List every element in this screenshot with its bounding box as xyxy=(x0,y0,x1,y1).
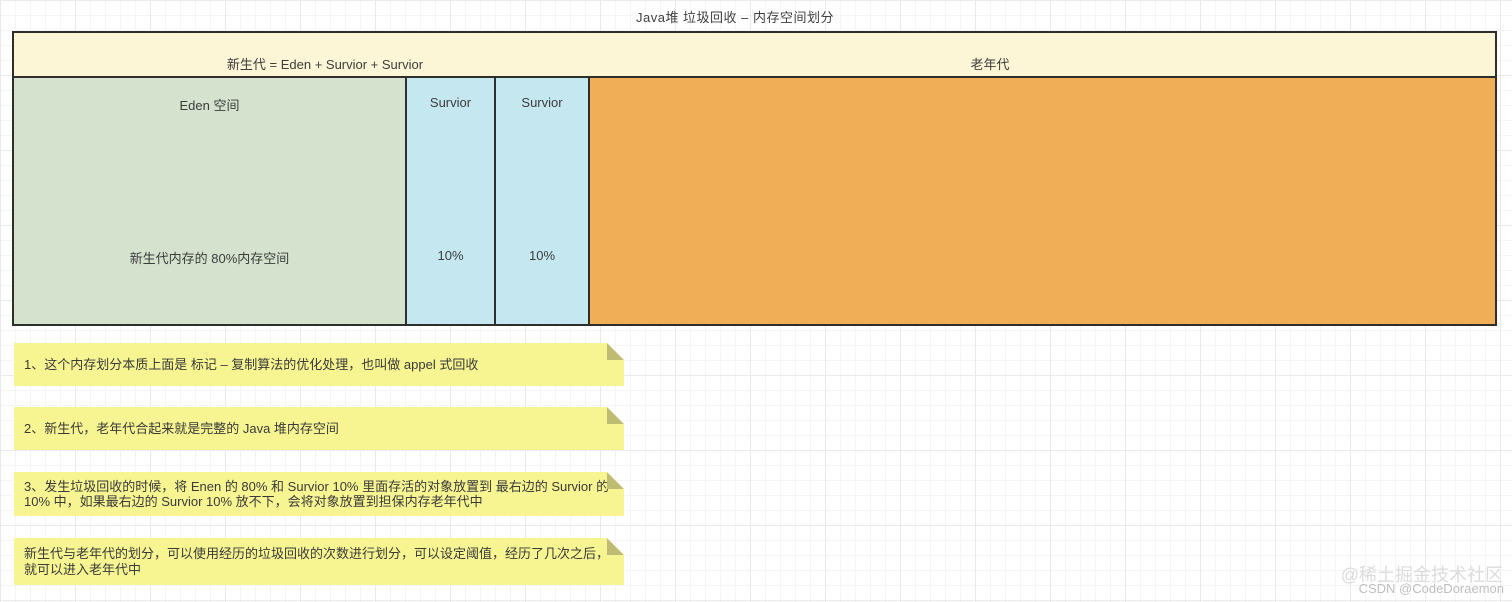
diagram-canvas: Java堆 垃圾回收 – 内存空间划分 新生代 = Eden + Survior… xyxy=(0,0,1512,602)
survivor-region-1: Survior 10% xyxy=(405,76,496,326)
eden-region: Eden 空间 新生代内存的 80%内存空间 xyxy=(12,76,407,326)
survivor-1-size-label: 10% xyxy=(407,248,494,263)
csdn-watermark: CSDN @CodeDoraemon xyxy=(1359,581,1504,596)
note-fold-corner-icon xyxy=(607,407,624,424)
note-fold-corner-icon xyxy=(607,538,624,555)
survivor-2-size-label: 10% xyxy=(496,248,588,263)
old-gen-region xyxy=(588,76,1497,326)
note-4: 新生代与老年代的划分，可以使用经历的垃圾回收的次数进行划分，可以设定阈值，经历了… xyxy=(14,538,624,585)
survivor-2-label: Survior xyxy=(496,95,588,110)
java-heap-diagram: 新生代 = Eden + Survior + Survior 老年代 Eden … xyxy=(12,31,1497,326)
eden-size-label: 新生代内存的 80%内存空间 xyxy=(14,248,405,267)
generation-header-bar: 新生代 = Eden + Survior + Survior 老年代 xyxy=(12,31,1497,78)
note-3: 3、发生垃圾回收的时候，将 Enen 的 80% 和 Survior 10% 里… xyxy=(14,472,624,516)
note-1-text: 1、这个内存划分本质上面是 标记 – 复制算法的优化处理，也叫做 appel 式… xyxy=(14,357,488,373)
old-gen-header-label: 老年代 xyxy=(840,54,1140,73)
note-1: 1、这个内存划分本质上面是 标记 – 复制算法的优化处理，也叫做 appel 式… xyxy=(14,343,624,386)
survivor-1-label: Survior xyxy=(407,95,494,110)
note-fold-corner-icon xyxy=(607,472,624,489)
eden-label: Eden 空间 xyxy=(14,95,405,114)
young-gen-header-label: 新生代 = Eden + Survior + Survior xyxy=(175,54,475,73)
survivor-region-2: Survior 10% xyxy=(494,76,590,326)
note-fold-corner-icon xyxy=(607,343,624,360)
memory-regions-row: Eden 空间 新生代内存的 80%内存空间 Survior 10% Survi… xyxy=(12,76,1497,326)
note-3-text: 3、发生垃圾回收的时候，将 Enen 的 80% 和 Survior 10% 里… xyxy=(14,479,624,510)
note-2: 2、新生代，老年代合起来就是完整的 Java 堆内存空间 xyxy=(14,407,624,450)
note-4-text: 新生代与老年代的划分，可以使用经历的垃圾回收的次数进行划分，可以设定阈值，经历了… xyxy=(14,546,624,577)
page-title: Java堆 垃圾回收 – 内存空间划分 xyxy=(585,7,885,26)
note-2-text: 2、新生代，老年代合起来就是完整的 Java 堆内存空间 xyxy=(14,421,349,437)
